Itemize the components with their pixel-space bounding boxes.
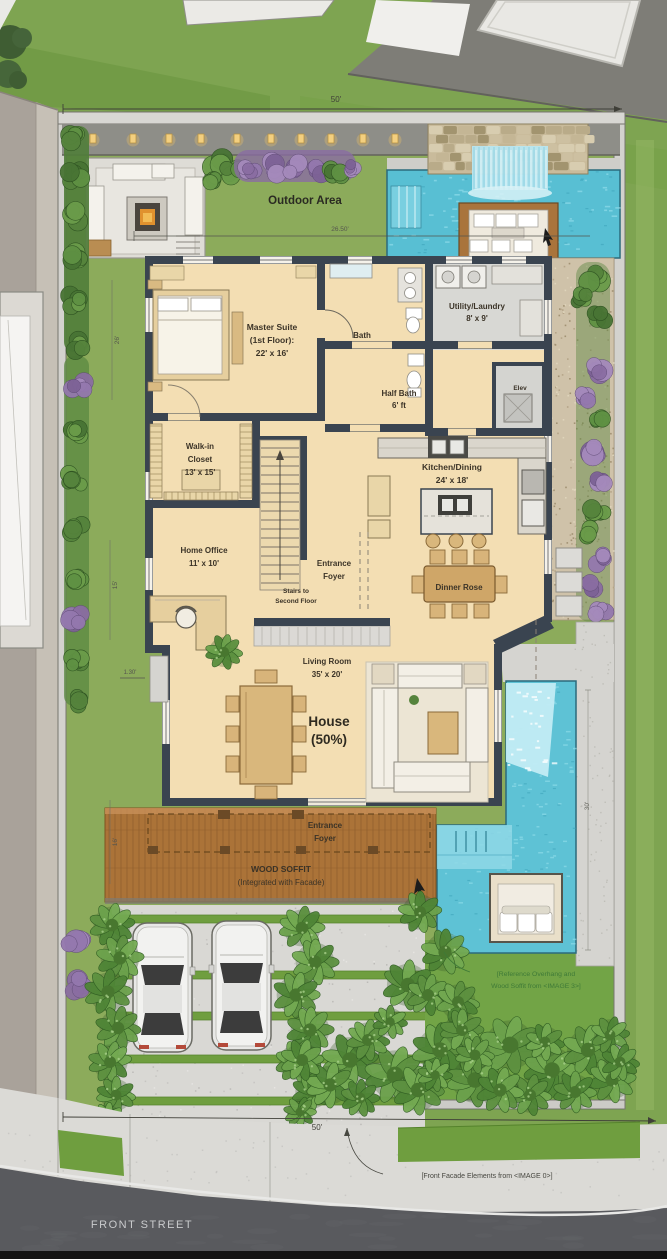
svg-text:Elev: Elev xyxy=(513,385,527,392)
svg-text:8' x 9': 8' x 9' xyxy=(466,314,488,323)
svg-text:Half Bath: Half Bath xyxy=(381,389,416,398)
svg-text:Master Suite: Master Suite xyxy=(247,322,298,332)
svg-text:16': 16' xyxy=(112,838,119,846)
svg-text:Utility/Laundry: Utility/Laundry xyxy=(449,302,506,311)
svg-text:1.30': 1.30' xyxy=(124,670,137,676)
svg-text:(Integrated with Facade): (Integrated with Facade) xyxy=(238,878,325,887)
svg-text:30': 30' xyxy=(584,802,591,810)
svg-text:Home Office: Home Office xyxy=(180,546,228,555)
svg-text:Living Room: Living Room xyxy=(303,657,351,666)
svg-text:House: House xyxy=(308,714,350,729)
svg-text:Stairs to: Stairs to xyxy=(283,588,309,595)
svg-text:WOOD SOFFIT: WOOD SOFFIT xyxy=(251,864,312,874)
svg-text:26': 26' xyxy=(114,336,121,344)
svg-text:26.50': 26.50' xyxy=(331,226,349,233)
svg-text:Outdoor Area: Outdoor Area xyxy=(268,195,342,207)
svg-text:Entrance: Entrance xyxy=(308,821,343,830)
svg-text:50': 50' xyxy=(331,95,342,104)
svg-text:Foyer: Foyer xyxy=(314,834,336,843)
svg-text:Second Floor: Second Floor xyxy=(275,598,317,605)
svg-text:Bath: Bath xyxy=(353,331,371,340)
svg-text:11' x 10': 11' x 10' xyxy=(189,559,219,568)
svg-text:Kitchen/Dining: Kitchen/Dining xyxy=(422,462,482,472)
svg-text:Entrance: Entrance xyxy=(317,559,352,568)
svg-text:15': 15' xyxy=(112,581,119,589)
svg-text:35' x 20': 35' x 20' xyxy=(312,670,343,679)
svg-text:(50%): (50%) xyxy=(311,732,347,747)
svg-text:Wood Soffit from <IMAGE 3>]: Wood Soffit from <IMAGE 3>] xyxy=(491,983,581,990)
svg-text:Walk-in: Walk-in xyxy=(186,442,214,451)
svg-text:(1st Floor):: (1st Floor): xyxy=(250,335,295,345)
svg-text:24' x 18': 24' x 18' xyxy=(436,475,468,485)
svg-text:6' ft: 6' ft xyxy=(392,401,406,410)
svg-text:22' x 16': 22' x 16' xyxy=(256,348,288,358)
svg-text:Foyer: Foyer xyxy=(323,572,345,581)
svg-text:13' x 15': 13' x 15' xyxy=(185,468,216,477)
svg-text:[Front Facade Elements from <I: [Front Facade Elements from <IMAGE 0>] xyxy=(421,1173,552,1180)
svg-text:50': 50' xyxy=(312,1123,323,1132)
svg-text:Dinner Rose: Dinner Rose xyxy=(435,583,483,592)
svg-text:Closet: Closet xyxy=(188,455,213,464)
svg-text:[Reference Overhang and: [Reference Overhang and xyxy=(497,971,575,978)
svg-text:FRONT STREET: FRONT STREET xyxy=(91,1219,193,1231)
